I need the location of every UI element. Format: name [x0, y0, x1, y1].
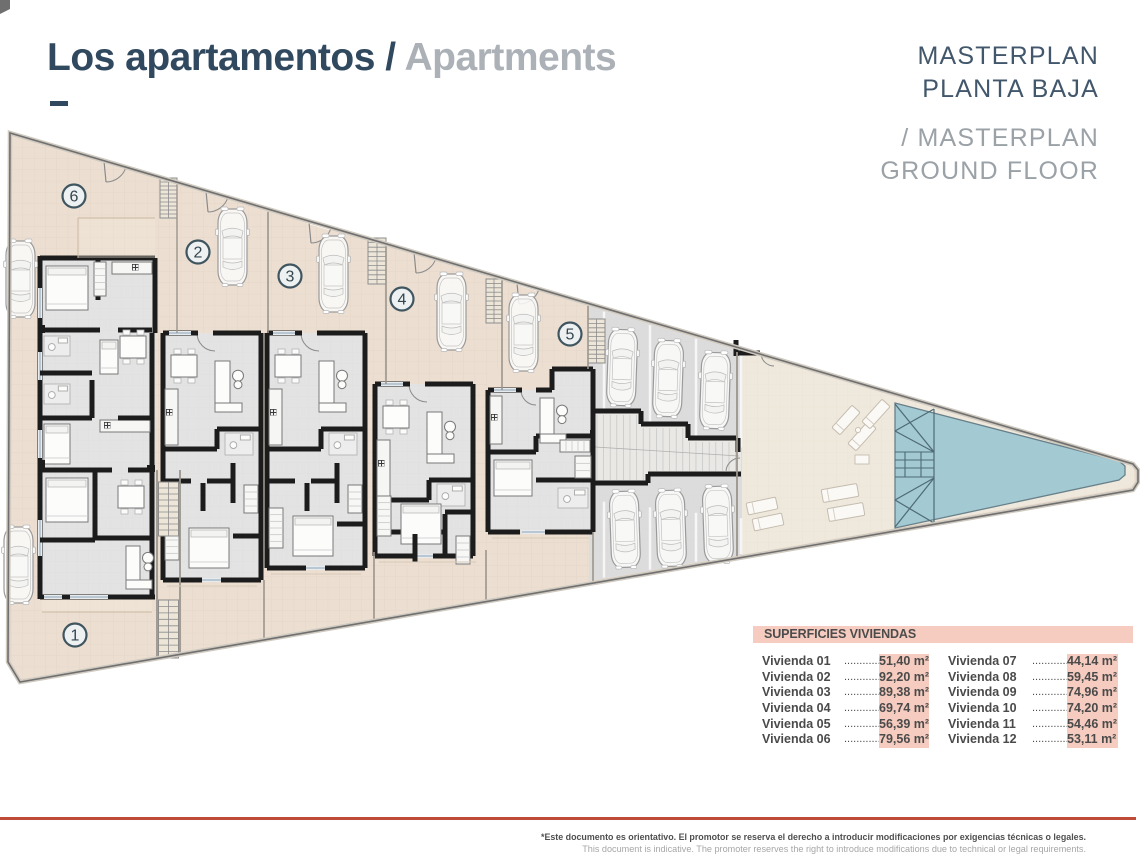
svg-text:5: 5 — [566, 327, 575, 344]
svg-text:1: 1 — [71, 628, 80, 645]
svg-text:6: 6 — [70, 189, 79, 206]
svg-text:4: 4 — [398, 292, 407, 309]
svg-text:3: 3 — [286, 269, 295, 286]
svg-text:2: 2 — [194, 245, 203, 262]
